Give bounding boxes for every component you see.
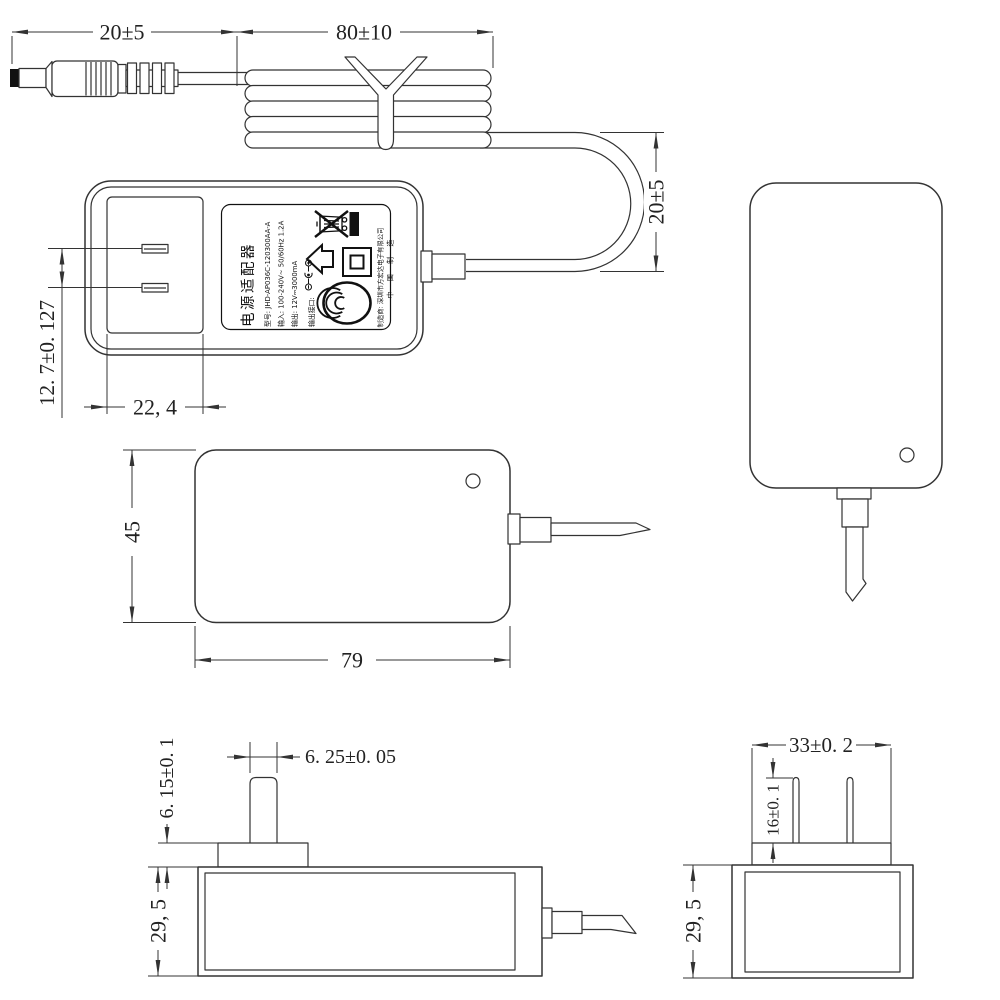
- section-pedestal: [218, 843, 308, 867]
- back-strain-relief: [842, 499, 868, 527]
- connector-pin: [19, 69, 46, 88]
- dim-blade-width: 6. 25±0. 05: [305, 746, 396, 768]
- connector-step: [118, 65, 126, 94]
- back-body: [750, 183, 942, 488]
- end-body-outer: [732, 865, 913, 978]
- section-cable-collar: [542, 908, 552, 938]
- label-port: 输出接口:: [307, 297, 316, 327]
- section-strain-relief: [552, 912, 582, 934]
- lead-cable: [178, 73, 250, 85]
- coil-turn: [245, 132, 491, 148]
- view-section-side: [198, 778, 636, 977]
- connector-tip: [10, 69, 19, 87]
- section-body-outer: [198, 867, 542, 976]
- cable-loop-outer: [466, 133, 645, 272]
- label-made-in: 中 国 制 造: [386, 236, 395, 299]
- dim-plug-segment: 20±5: [99, 20, 144, 45]
- end-blade-right: [847, 778, 853, 844]
- strain-rib: [128, 63, 137, 94]
- dim-body-width: 79: [341, 648, 363, 673]
- section-cable-stub: [582, 916, 636, 934]
- coiled-cable: [245, 57, 491, 150]
- drawing-canvas: 电源适配器 型号: JHD-AP036C-120300AA-A 输入: 100-…: [0, 0, 1000, 1000]
- dim-depth-right: 29, 5: [681, 899, 706, 943]
- cable-loop-u-turn: [466, 133, 645, 272]
- dim-depth-left: 29, 5: [146, 899, 171, 943]
- end-blade-left: [793, 778, 799, 844]
- back-cable-stub: [846, 527, 866, 601]
- weee-black-bar-icon: [350, 212, 360, 236]
- dim-recess-width: 22, 4: [133, 395, 177, 420]
- dim-blade-length: 16±0. 1: [764, 784, 783, 836]
- strain-rib: [153, 63, 162, 94]
- dim-loop-height: 20±5: [644, 179, 669, 224]
- cable-exit-collar: [421, 251, 432, 282]
- strain-rib: [165, 63, 174, 94]
- coil-turn: [245, 101, 491, 117]
- back-cable-collar: [837, 488, 871, 499]
- plug-face-recess: [107, 197, 203, 333]
- side-strain-relief: [520, 518, 551, 543]
- dim-pedestal-width: 33±0. 2: [789, 733, 853, 757]
- label-title: 电源适配器: [240, 242, 257, 327]
- coil-turn: [245, 117, 491, 133]
- strain-rib: [140, 63, 149, 94]
- connector-barrel: [52, 61, 118, 97]
- view-side: [195, 450, 650, 623]
- connector-taper: [46, 62, 52, 97]
- cable-loop-inner: [466, 148, 631, 260]
- coil-turn: [245, 86, 491, 102]
- dim-pedestal-height: 6. 15±0. 1: [156, 738, 178, 819]
- label-model: 型号: JHD-AP036C-120300AA-A: [263, 221, 272, 327]
- label-manufacturer: 制造商: 深圳市方宏达电子有限公司: [376, 227, 385, 327]
- view-section-end: [732, 778, 913, 979]
- extension-lines-pedestal-height: [148, 843, 218, 867]
- section-blade: [250, 778, 277, 844]
- adapter-dimensional-drawing: 电源适配器 型号: JHD-AP036C-120300AA-A 输入: 100-…: [0, 0, 1000, 1000]
- view-back: [750, 183, 942, 601]
- cable-exit-strain-relief: [432, 254, 465, 279]
- dc-barrel-connector: [10, 61, 250, 97]
- side-cable-stub: [551, 523, 650, 536]
- side-cable-collar: [508, 514, 520, 544]
- view-front: 电源适配器 型号: JHD-AP036C-120300AA-A 输入: 100-…: [85, 181, 465, 355]
- label-input: 输入: 100-240V~ 50/60Hz 1.2A: [277, 220, 286, 327]
- dim-coil-segment: 80±10: [336, 20, 392, 45]
- label-output: 输出: 12V⎓3000mA: [290, 260, 299, 327]
- side-body: [195, 450, 510, 623]
- dim-blade-pitch: 12. 7±0. 127: [35, 300, 59, 406]
- dim-body-height: 45: [120, 521, 145, 543]
